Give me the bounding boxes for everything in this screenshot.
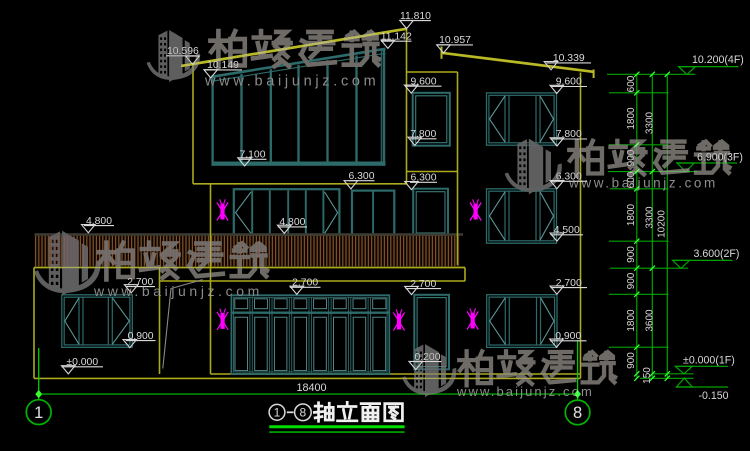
svg-text:±0.000(1F): ±0.000(1F): [683, 354, 735, 366]
svg-text:8: 8: [300, 406, 307, 420]
svg-text:1800: 1800: [626, 107, 637, 130]
svg-text:900: 900: [626, 352, 637, 369]
svg-text:3300: 3300: [645, 111, 656, 134]
svg-text:3300: 3300: [645, 206, 656, 229]
svg-text:10.200(4F): 10.200(4F): [692, 54, 744, 66]
svg-text:1800: 1800: [626, 203, 637, 226]
svg-text:-0.150: -0.150: [699, 390, 729, 402]
svg-text:1: 1: [274, 406, 281, 420]
svg-text:900: 900: [626, 246, 637, 263]
svg-text:600: 600: [626, 171, 637, 188]
svg-text:10200: 10200: [656, 210, 667, 238]
svg-text:18400: 18400: [297, 382, 327, 394]
svg-text:1: 1: [34, 404, 43, 422]
svg-text:600: 600: [626, 75, 637, 92]
svg-text:900: 900: [626, 272, 637, 289]
svg-text:8: 8: [573, 404, 582, 422]
svg-text:3600: 3600: [645, 309, 656, 332]
svg-text:900: 900: [626, 149, 637, 166]
svg-text:1800: 1800: [626, 309, 637, 332]
svg-text:150: 150: [642, 367, 653, 384]
svg-text:3.600(2F): 3.600(2F): [694, 248, 740, 260]
svg-text:6.900(3F): 6.900(3F): [697, 151, 743, 163]
